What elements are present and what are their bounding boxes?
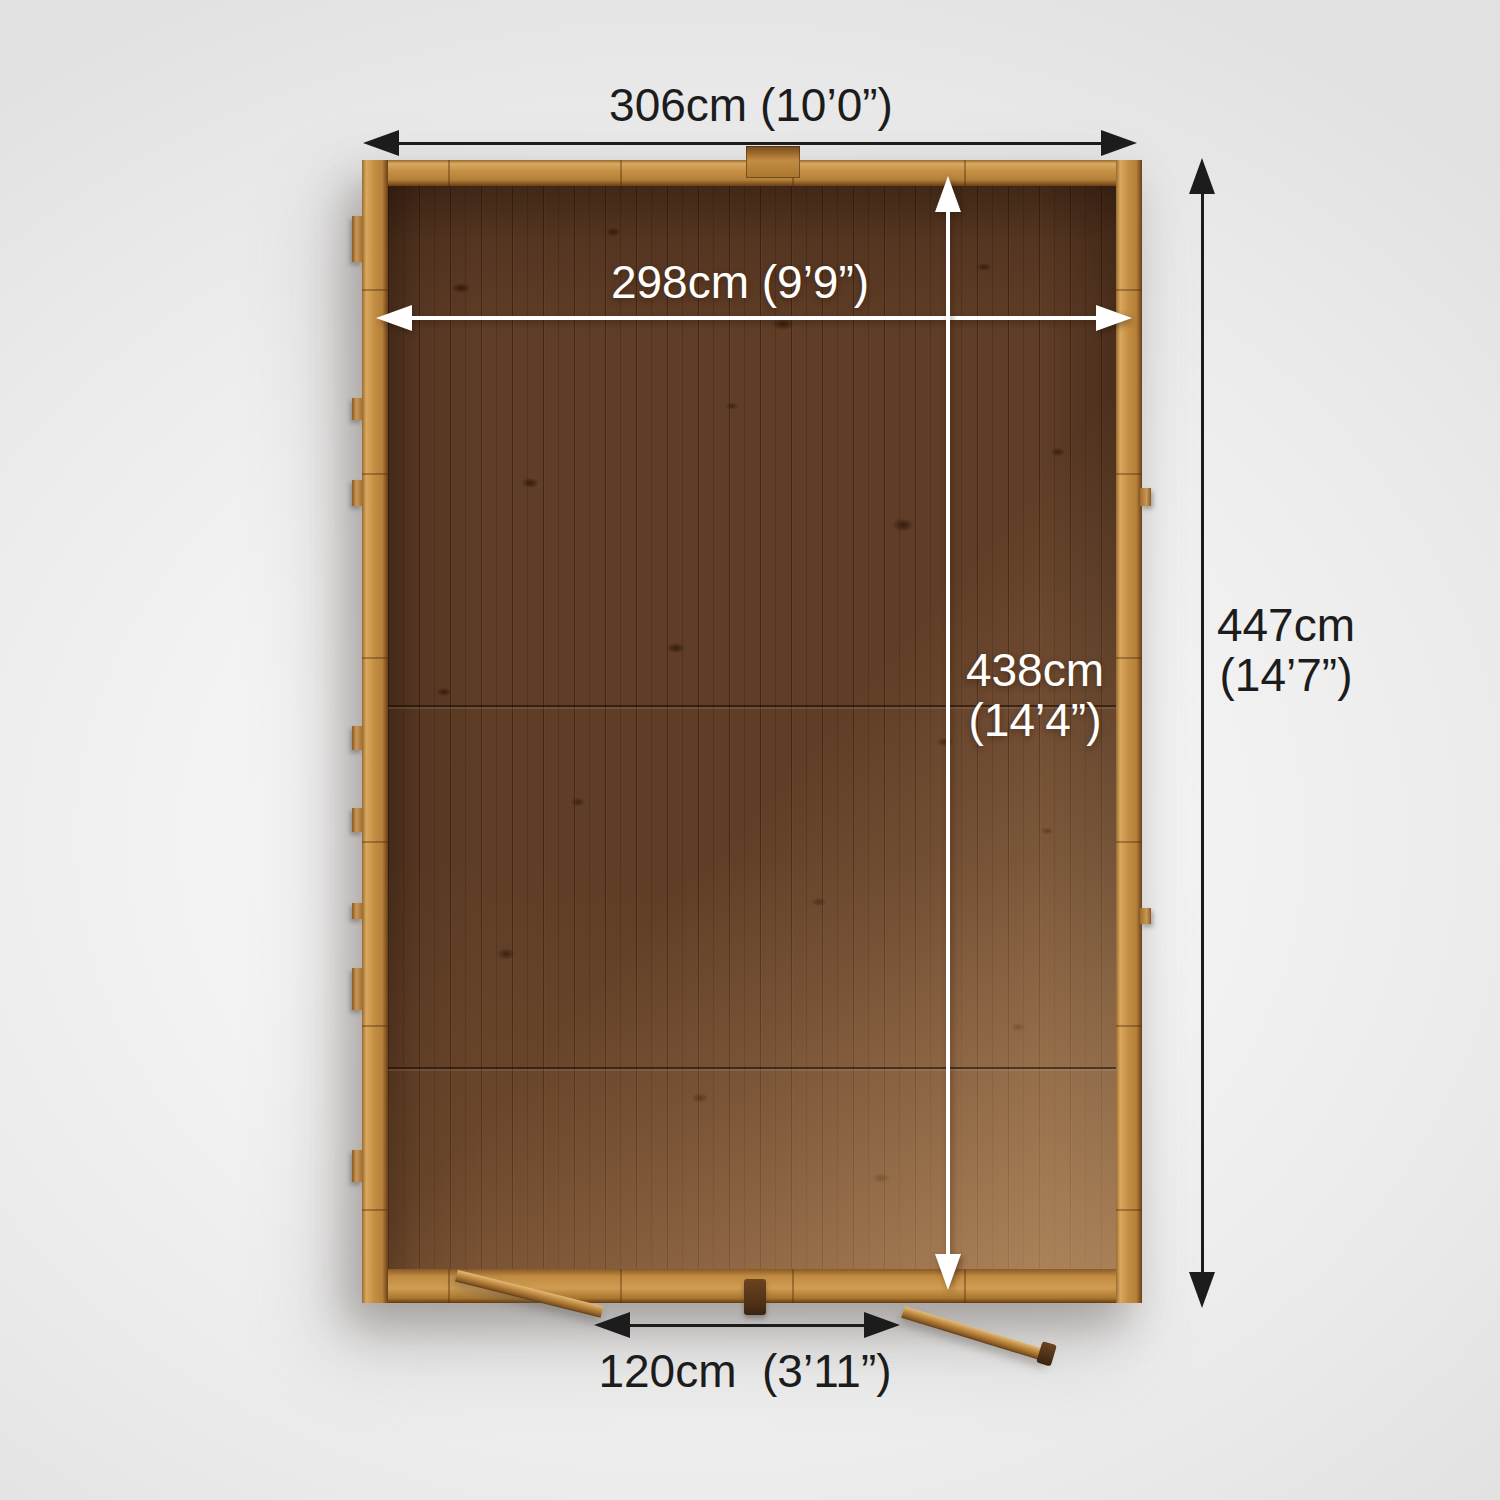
dim-external-depth-arrow [1189,158,1215,1308]
door-latch-block [744,1279,766,1315]
shed-dimension-diagram: 306cm (10’0”) 298cm (9’9”) 438cm (14’4”)… [0,0,1500,1500]
arrowhead-up-icon [1189,158,1215,194]
dimension-line [404,316,1104,320]
dim-internal-depth-label-line1: 438cm [935,645,1135,695]
arrowhead-down-icon [1189,1272,1215,1308]
shed-wall-left [362,160,388,1303]
dim-door-width-label: 120cm (3’11”) [515,1346,975,1396]
arrowhead-right-icon [864,1312,900,1338]
floor-panel-seam [388,1067,1116,1071]
framing-tab [352,903,363,919]
arrowhead-right-icon [1096,305,1132,331]
door-handle [1036,1341,1057,1366]
arrowhead-right-icon [1101,130,1137,156]
dim-external-width-label: 306cm (10’0”) [365,80,1137,130]
dimension-line [1201,186,1204,1280]
dim-internal-depth-label-line2: (14’4”) [935,695,1135,745]
framing-tab [1140,488,1151,506]
arrowhead-left-icon [376,305,412,331]
framing-tab [352,216,363,262]
arrowhead-left-icon [594,1312,630,1338]
framing-tab [1140,908,1151,924]
framing-tab [352,1150,363,1182]
framing-tab [352,480,363,506]
arrowhead-left-icon [363,130,399,156]
arrowhead-down-icon [935,1254,961,1290]
dim-external-width-arrow [363,130,1137,156]
dimension-line [622,1324,872,1327]
arrowhead-up-icon [935,176,961,212]
dimension-line [391,142,1109,145]
dim-external-depth-label-line1: 447cm [1186,600,1386,650]
dim-internal-width-label: 298cm (9’9”) [360,257,1120,307]
dim-internal-width-arrow [376,305,1132,331]
framing-tab [352,808,363,832]
framing-tab [352,968,363,1010]
framing-tab [352,726,363,750]
dim-external-depth-label-line2: (14’7”) [1186,650,1386,700]
dim-door-width-arrow [594,1312,900,1338]
framing-tab [352,398,363,420]
